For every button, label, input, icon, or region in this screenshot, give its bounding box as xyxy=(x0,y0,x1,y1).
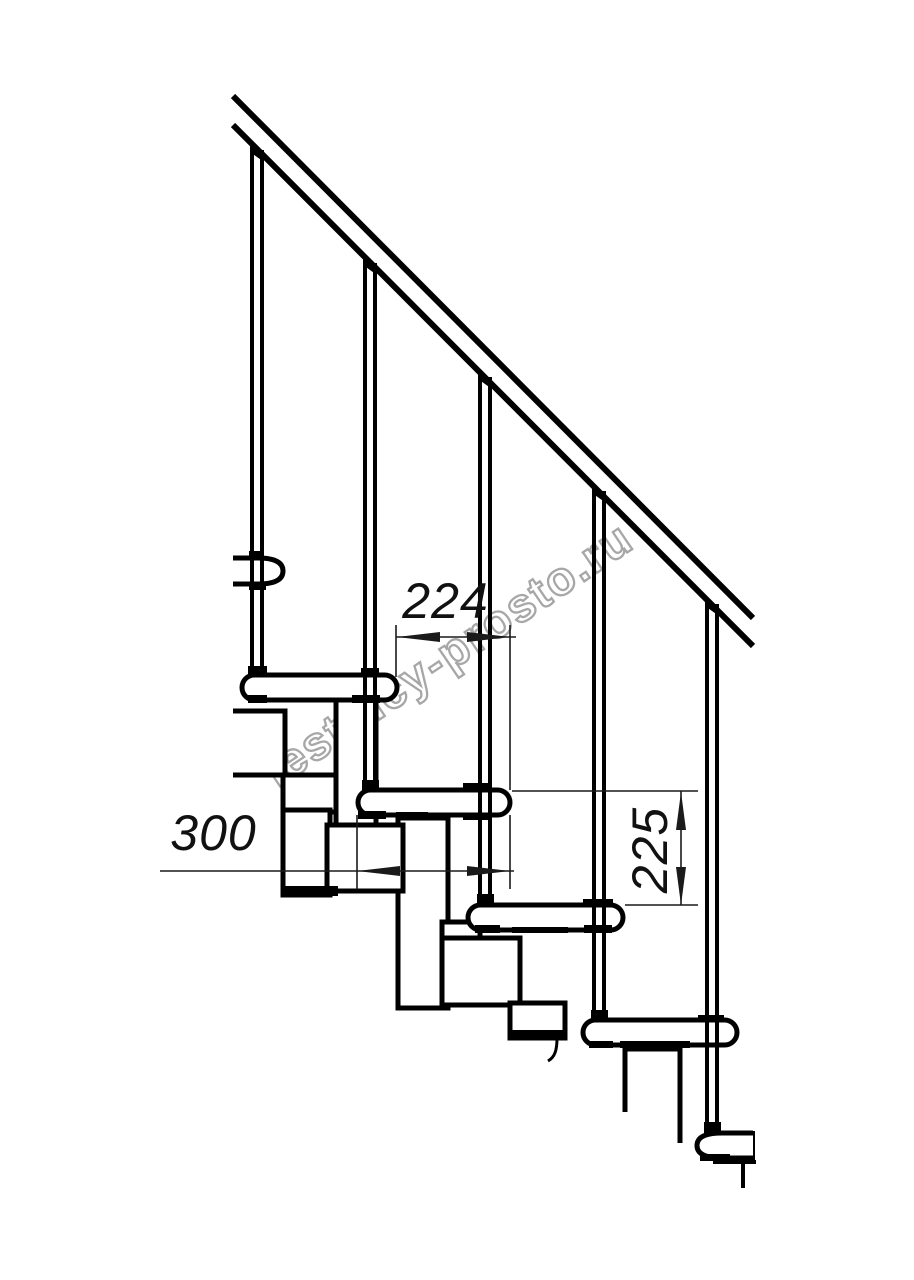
module-under-tread-4 xyxy=(625,1049,680,1143)
module-r1b xyxy=(283,775,342,812)
baluster-4 xyxy=(594,491,604,1022)
break-lines xyxy=(548,1038,756,1188)
dimension-label-225: 225 xyxy=(622,792,678,908)
module-square-2 xyxy=(442,938,520,1005)
module-square-1 xyxy=(327,825,403,891)
staircase-drawing xyxy=(0,0,914,1280)
handrail-upper-line xyxy=(233,96,753,618)
baluster-3 xyxy=(480,377,490,905)
module-upper-cut xyxy=(233,711,285,775)
handrail xyxy=(233,96,753,646)
dimension-224 xyxy=(396,625,516,790)
tread-0-partial xyxy=(233,558,283,584)
baluster-1 xyxy=(252,150,262,677)
drawing-canvas: lestnicy-prosto.ru xyxy=(0,0,914,1280)
baluster-5 xyxy=(707,604,717,1135)
dimension-label-224: 224 xyxy=(398,576,493,626)
dimension-label-300: 300 xyxy=(166,808,261,858)
handrail-lower-line xyxy=(233,125,753,646)
module-r2 xyxy=(283,810,330,895)
